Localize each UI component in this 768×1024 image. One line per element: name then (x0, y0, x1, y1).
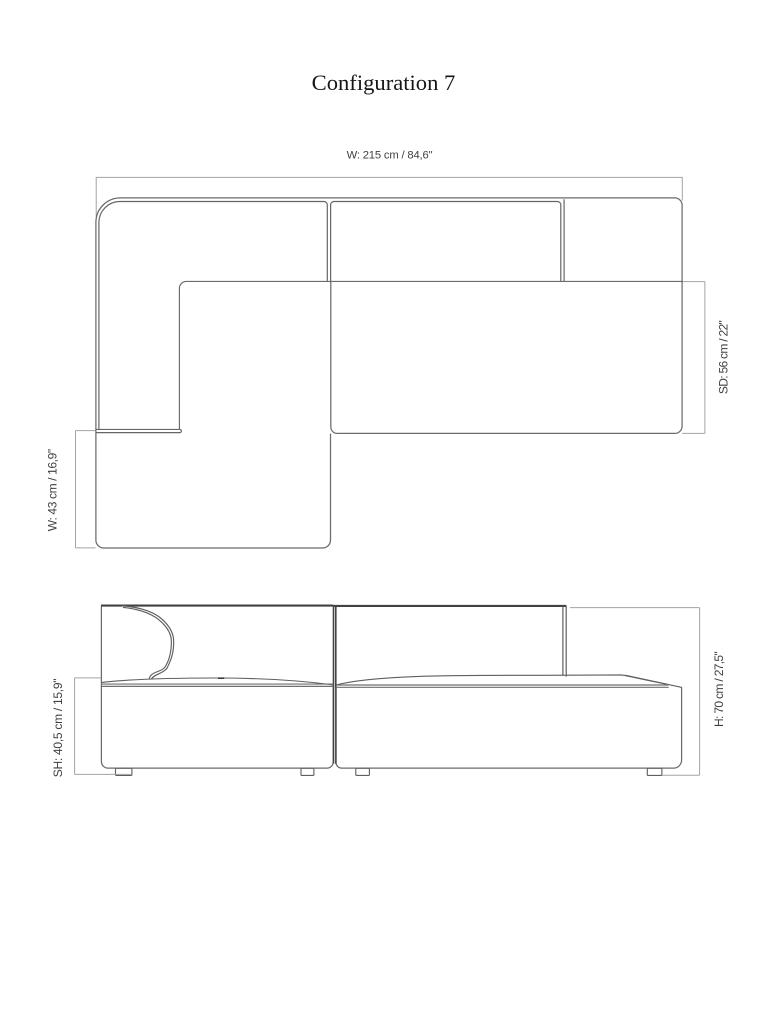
svg-text:W: 215 cm / 84,6": W: 215 cm / 84,6" (347, 149, 433, 161)
svg-text:SD: 56 cm / 22": SD: 56 cm / 22" (717, 321, 731, 395)
svg-text:Configuration 7: Configuration 7 (312, 70, 456, 95)
svg-text:H: 70 cm / 27,5": H: 70 cm / 27,5" (712, 652, 726, 727)
svg-text:W: 43 cm / 16,9": W: 43 cm / 16,9" (46, 449, 60, 531)
svg-text:SH: 40,5 cm / 15,9": SH: 40,5 cm / 15,9" (51, 679, 65, 778)
